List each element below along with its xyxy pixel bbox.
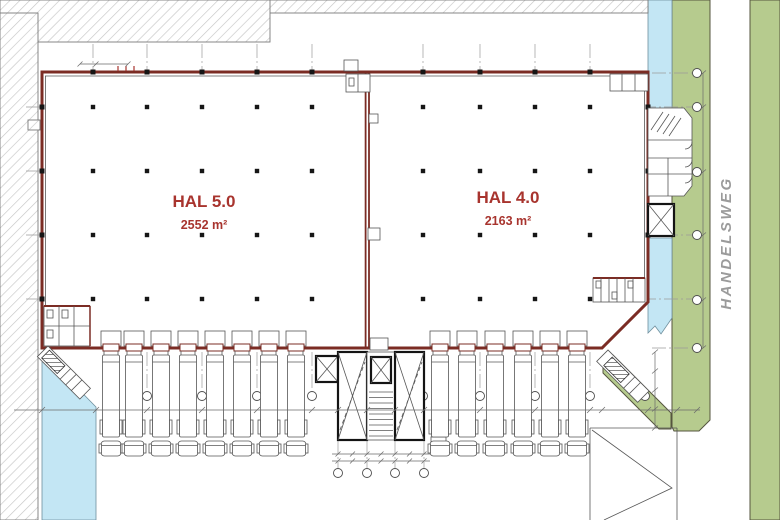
truck bbox=[176, 355, 200, 456]
dock-door bbox=[259, 331, 279, 358]
dock-door bbox=[430, 331, 450, 358]
stair-bottom-right bbox=[597, 350, 649, 402]
truck bbox=[230, 355, 254, 456]
hall-4-area: 2163 m² bbox=[485, 214, 532, 228]
truck bbox=[483, 355, 507, 456]
hatch-band-left bbox=[0, 13, 38, 520]
paving-markings bbox=[590, 428, 677, 520]
central-stair bbox=[367, 352, 395, 440]
top-right-rooms bbox=[610, 74, 648, 91]
truck bbox=[149, 355, 173, 456]
dock-door bbox=[151, 331, 171, 358]
right-toilet-block bbox=[593, 278, 645, 302]
truck bbox=[455, 355, 479, 456]
floor-plan-page: HANDELSWEG bbox=[0, 0, 780, 520]
hall-5-area: 2552 m² bbox=[181, 218, 228, 232]
building-floor bbox=[42, 72, 648, 348]
ramp-left bbox=[338, 352, 367, 440]
divider-cabinet-mid bbox=[368, 228, 380, 240]
dock-door bbox=[286, 331, 306, 358]
ramp-right bbox=[395, 352, 424, 440]
hall-5-name: HAL 5.0 bbox=[173, 192, 236, 211]
warehouse-building: HAL 5.0 2552 m² HAL 4.0 2163 m² bbox=[40, 60, 651, 348]
green-verge-near bbox=[672, 0, 710, 431]
hatch-block-top-left bbox=[0, 0, 270, 42]
street-label: HANDELSWEG bbox=[718, 176, 735, 309]
hatch-pier bbox=[28, 120, 40, 130]
dock-door bbox=[232, 331, 252, 358]
truck bbox=[565, 355, 589, 456]
water-strip-mid-right bbox=[648, 238, 672, 334]
divider-cabinet-top bbox=[369, 114, 378, 123]
dock-door bbox=[485, 331, 505, 358]
dock-door bbox=[101, 331, 121, 358]
green-verge-far bbox=[750, 0, 780, 520]
dock-door bbox=[178, 331, 198, 358]
dock-door bbox=[205, 331, 225, 358]
dock-door bbox=[540, 331, 560, 358]
dock-door bbox=[124, 331, 144, 358]
stair-head-box bbox=[370, 338, 388, 350]
truck bbox=[511, 355, 535, 456]
dock-door bbox=[567, 331, 587, 358]
floor-plan-drawing: HANDELSWEG bbox=[0, 0, 780, 520]
truck bbox=[203, 355, 227, 456]
truck bbox=[122, 355, 146, 456]
turning-arrow-marking bbox=[592, 430, 672, 520]
ramp-hatch-box bbox=[316, 356, 338, 382]
bottom-left-rooms bbox=[44, 306, 90, 346]
dock-door bbox=[457, 331, 477, 358]
water-strip-top-right bbox=[648, 0, 672, 110]
truck bbox=[538, 355, 562, 456]
truck bbox=[99, 355, 123, 456]
truck bbox=[284, 355, 308, 456]
annex-shaft bbox=[648, 204, 674, 236]
dock-door bbox=[513, 331, 533, 358]
hall-4-name: HAL 4.0 bbox=[477, 188, 540, 207]
truck bbox=[257, 355, 281, 456]
top-divider-room bbox=[344, 60, 370, 92]
